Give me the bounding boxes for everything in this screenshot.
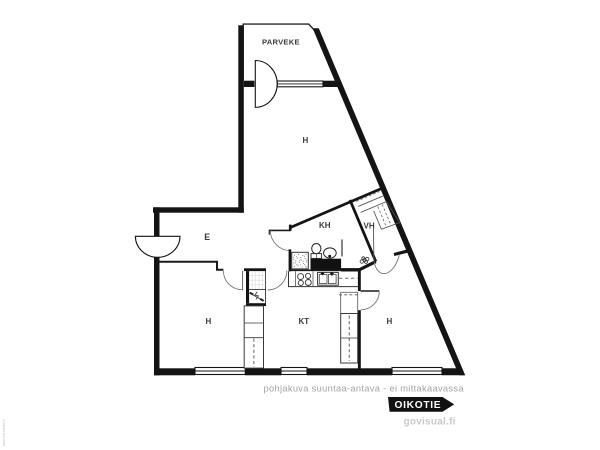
svg-text:KH: KH — [319, 221, 331, 230]
svg-text:H: H — [387, 317, 393, 326]
svg-text:govisual.fi: govisual.fi — [404, 417, 456, 428]
svg-text:KT: KT — [299, 317, 310, 326]
svg-text:PARVEKE: PARVEKE — [262, 38, 300, 47]
svg-text:H: H — [303, 136, 309, 145]
svg-text:H: H — [206, 317, 212, 326]
svg-text:OIKOTIE: OIKOTIE — [395, 400, 442, 411]
svg-text:E: E — [204, 232, 210, 242]
svg-text:asunnot.oikotie.fi: asunnot.oikotie.fi — [2, 419, 6, 446]
svg-text:pohjakuva suuntaa-antava - ei: pohjakuva suuntaa-antava - ei mittakaava… — [264, 384, 465, 394]
